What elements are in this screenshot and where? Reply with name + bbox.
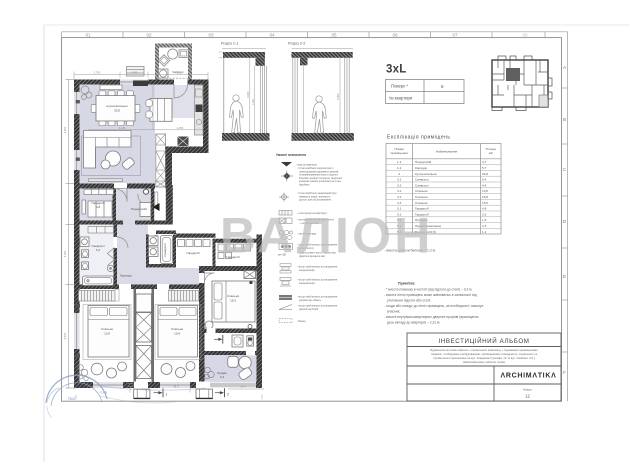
svg-text:1.2: 1.2 (397, 166, 402, 170)
svg-text:4.1: 4.1 (397, 189, 402, 193)
svg-text:4,3: 4,3 (220, 375, 225, 379)
svg-text:Спальня: Спальня (171, 327, 183, 331)
svg-text:B: B (563, 117, 566, 122)
svg-text:1.900: 1.900 (131, 71, 138, 75)
svg-text:4.2: 4.2 (397, 195, 402, 199)
svg-text:2,5: 2,5 (482, 212, 487, 216)
svg-text:Спальня: Спальня (101, 327, 113, 331)
svg-text:- висота лiтнiх примiщень може: - висота лiтнiх примiщень може змiнюватi… (384, 293, 477, 297)
svg-text:Коридор: Коридор (415, 166, 427, 170)
svg-text:01: 01 (85, 33, 91, 38)
svg-text:1: 1 (166, 393, 168, 397)
svg-text:3.2: 3.2 (397, 183, 402, 187)
svg-text:паркiнгiв, та вбудовано-прибуд: паркiнгiв, та вбудовано-прибудованими, п… (431, 352, 538, 356)
svg-text:Спальня: Спальня (415, 189, 428, 193)
svg-text:07: 07 (452, 33, 458, 38)
svg-text:доступ для обслуговування.: доступ для обслуговування. (299, 199, 332, 202)
svg-text:4,7: 4,7 (482, 160, 487, 164)
svg-text:Будiвництво житлово-офiсного,: Будiвництво житлово-офiсного, торгiвельн… (430, 348, 538, 352)
svg-text:Шевченкiвському районi м. Киє: Шевченкiвському районi м. Києва (463, 360, 505, 364)
svg-text:Гардероб: Гардероб (186, 251, 199, 255)
svg-text:- Балка: - Балка (297, 320, 306, 323)
svg-text:16,5: 16,5 (230, 298, 236, 302)
svg-text:1.1: 1.1 (397, 160, 402, 164)
svg-text:15,8: 15,8 (174, 331, 180, 335)
svg-text:4,4: 4,4 (482, 183, 487, 187)
svg-text:2.780: 2.780 (94, 71, 101, 75)
svg-text:Санвузол: Санвузол (415, 183, 429, 187)
svg-text:- сходи або панцус до лiтнiх п: - сходи або панцус до лiтнiх примiщень, … (384, 304, 484, 308)
svg-text:F: F (563, 370, 566, 375)
svg-text:утеплення пiдлоги або стелi;: утеплення пiдлоги або стелi; (387, 299, 431, 303)
svg-text:4.050: 4.050 (175, 71, 182, 75)
svg-text:06: 06 (392, 33, 398, 38)
svg-text:№2: №2 (68, 396, 76, 401)
svg-text:- висота внутрiшньоквартирних: - висота внутрiшньоквартирних дверних пр… (384, 315, 479, 319)
svg-text:торгiвельного призначення на: торгiвельного призначення на вул. Академ… (433, 356, 536, 360)
svg-text:Найменування: Найменування (436, 150, 458, 154)
svg-text:м2: м2 (489, 151, 493, 155)
svg-text:- * висота помешку в чистотi (: - * висота помешку в чистотi (вiд пiдлог… (384, 288, 472, 292)
svg-text:примiщення: примiщення (391, 151, 409, 155)
svg-text:№ квартири: № квартири (389, 96, 413, 101)
svg-text:E: E (563, 274, 566, 279)
svg-text:4.425: 4.425 (119, 126, 126, 130)
svg-text:05: 05 (331, 33, 337, 38)
svg-text:Експлiкацiя примiщень: Експлiкацiя примiщень (387, 134, 451, 140)
svg-text:Санвузол: Санвузол (415, 178, 429, 182)
svg-text:34 0: 34 0 (173, 385, 179, 389)
svg-text:власник;: власник; (387, 310, 400, 314)
svg-text:3.090: 3.090 (252, 98, 255, 105)
svg-text:13,8: 13,8 (482, 189, 488, 193)
svg-text:Спальня: Спальня (227, 294, 239, 298)
svg-text:4.3: 4.3 (397, 201, 402, 205)
svg-text:Поверх *: Поверх * (391, 84, 408, 89)
svg-text:Санвузол: Санвузол (163, 243, 167, 256)
svg-text:03: 03 (208, 33, 214, 38)
svg-text:16,5: 16,5 (482, 201, 488, 205)
svg-text:Коридор: Коридор (120, 274, 132, 278)
svg-text:13,8: 13,8 (104, 331, 110, 335)
svg-text:3.300: 3.300 (246, 91, 250, 98)
svg-text:ВАЛIОН: ВАЛIОН (220, 208, 434, 264)
svg-text:3.1: 3.1 (397, 178, 402, 182)
svg-text:1,1: 1,1 (482, 230, 487, 234)
svg-text:6.950: 6.950 (63, 126, 67, 133)
svg-text:Кухня-вiтальня: Кухня-вiтальня (415, 172, 437, 176)
svg-text:4,8: 4,8 (482, 207, 487, 211)
svg-text:2: 2 (398, 172, 400, 176)
svg-text:Розрiз 2-2: Розрiз 2-2 (288, 42, 305, 46)
svg-text:04: 04 (269, 33, 275, 38)
svg-text:6,4: 6,4 (482, 178, 487, 182)
svg-text:3.300: 3.300 (336, 93, 340, 100)
svg-text:34 0: 34 0 (240, 385, 246, 389)
svg-text:ΛRCHIMΛTIKΛ: ΛRCHIMΛTIKΛ (501, 372, 557, 379)
svg-text:IНВЕСТИЦIЙНИЙ АЛЬБОМ: IНВЕСТИЦIЙНИЙ АЛЬБОМ (438, 337, 529, 345)
svg-text:Розрiз 1-1: Розрiз 1-1 (221, 42, 238, 46)
svg-text:6,4: 6,4 (96, 248, 101, 252)
svg-text:4,8: 4,8 (96, 205, 101, 209)
svg-text:дзеркал вд «Люкс»: дзеркал вд «Люкс» (299, 299, 322, 302)
svg-text:6: 6 (441, 84, 444, 89)
svg-text:Спальня: Спальня (415, 201, 428, 205)
svg-text:Передпокiй: Передпокiй (131, 207, 147, 211)
svg-text:33,8: 33,8 (482, 172, 488, 176)
svg-text:33,8: 33,8 (114, 108, 120, 112)
svg-text:3xL: 3xL (386, 63, 406, 75)
svg-text:Примiтка:: Примiтка: (398, 282, 415, 286)
svg-text:4,3: 4,3 (482, 224, 487, 228)
svg-text:2: 2 (227, 393, 229, 397)
svg-text:кондицiонера: кондицiонера (299, 269, 315, 272)
svg-text:десь вкладу до квартири) – 2,3: десь вкладу до квартири) – 2,31 м. (387, 321, 440, 325)
svg-text:1,8: 1,8 (482, 218, 487, 222)
svg-text:Кухня-вiтальня: Кухня-вiтальня (107, 104, 128, 108)
svg-text:4.000: 4.000 (63, 250, 67, 257)
svg-text:12: 12 (525, 394, 530, 399)
svg-text:Спальня: Спальня (415, 195, 428, 199)
svg-text:5,7: 5,7 (482, 166, 487, 170)
svg-text:Аркуш: Аркуш (523, 388, 533, 392)
svg-text:пiдобано.: пiдобано. (299, 184, 310, 187)
svg-text:02: 02 (146, 33, 152, 38)
svg-text:Умовнi позначення: Умовнi позначення (276, 153, 306, 157)
svg-text:08: 08 (522, 33, 528, 38)
svg-text:Передпокiй: Передпокiй (415, 160, 432, 164)
svg-text:15,8: 15,8 (482, 195, 488, 199)
svg-text:дверей на бiчнiй: дверей на бiчнiй (299, 308, 319, 311)
svg-text:6.450: 6.450 (63, 332, 67, 339)
svg-text:4.350: 4.350 (177, 126, 184, 130)
svg-text:кондицiонера: кондицiонера (299, 282, 315, 285)
